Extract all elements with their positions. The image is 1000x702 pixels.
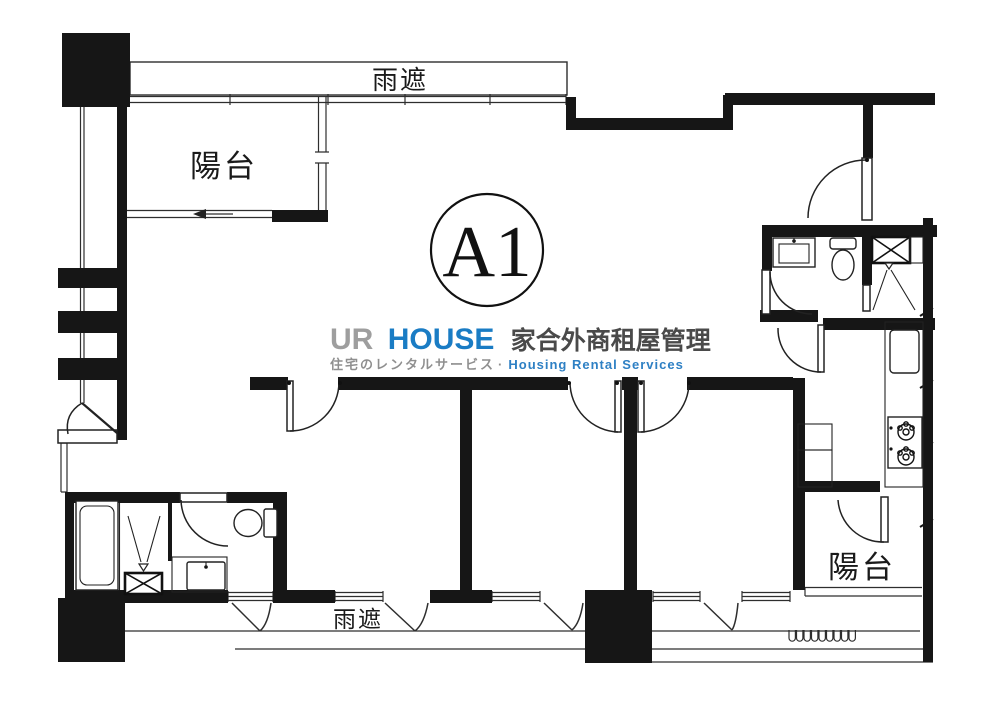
balcony-bottom-right-label: 陽台: [828, 550, 896, 585]
watermark-brand-gray: UR: [330, 323, 374, 356]
toilet-icon: [830, 238, 856, 280]
floor-plan-drawing: A1 雨遮 陽台 雨遮 陽台 UR HOUSE 家合外商租屋管理 住宅のレンタル…: [0, 0, 1000, 702]
balcony-ledge-lines: [805, 588, 922, 597]
kitchen-sink-icon: [890, 330, 919, 373]
watermark-tagline-en: Housing Rental Services: [508, 357, 683, 372]
bathroom-bottom-left: [76, 501, 277, 594]
duct-icon: [125, 573, 162, 594]
sink-icon: [773, 238, 815, 267]
svg-text:住宅のレンタルサービス·Housing Rental Ser: 住宅のレンタルサービス·Housing Rental Services: [330, 357, 684, 372]
rain-shelter-top-label: 雨遮: [372, 65, 428, 95]
casement-window-icon: [232, 603, 738, 631]
unit-label: A1: [442, 211, 531, 292]
shower-icon: [128, 516, 160, 571]
ac-vent-icon: [789, 630, 855, 641]
unit-badge: A1: [431, 194, 543, 306]
rain-shelter-top-band: [130, 62, 567, 95]
stove-icon: [888, 417, 922, 468]
rain-shelter-bottom-label: 雨遮: [333, 606, 383, 632]
balcony-top-left-label: 陽台: [190, 149, 258, 184]
floor-plan: A1 雨遮 陽台 雨遮 陽台 UR HOUSE 家合外商租屋管理 住宅のレンタル…: [0, 0, 1000, 702]
entrance-door-icon: [58, 403, 117, 443]
bathtub-icon: [76, 501, 118, 590]
shower-icon: [873, 263, 915, 310]
kitchen: [798, 322, 923, 487]
column-bottom-left: [58, 598, 125, 662]
column-bottom-middle: [585, 590, 652, 663]
watermark-brand-cjk: 家合外商租屋管理: [511, 326, 711, 355]
watermark-brand-blue: HOUSE: [388, 323, 495, 356]
toilet-icon: [234, 509, 277, 537]
bathroom-top-right: [773, 237, 923, 310]
duct-icon: [872, 237, 923, 263]
sink-icon: [172, 557, 227, 592]
watermark-tagline-jp: 住宅のレンタルサービス: [330, 357, 495, 372]
column-top-left: [62, 33, 130, 107]
watermark-logo: UR HOUSE 家合外商租屋管理 住宅のレンタルサービス·Housing Re…: [330, 323, 711, 372]
svg-text:UR HOUSE 家合外商租屋管理: UR HOUSE 家合外商租屋管理: [330, 323, 711, 356]
